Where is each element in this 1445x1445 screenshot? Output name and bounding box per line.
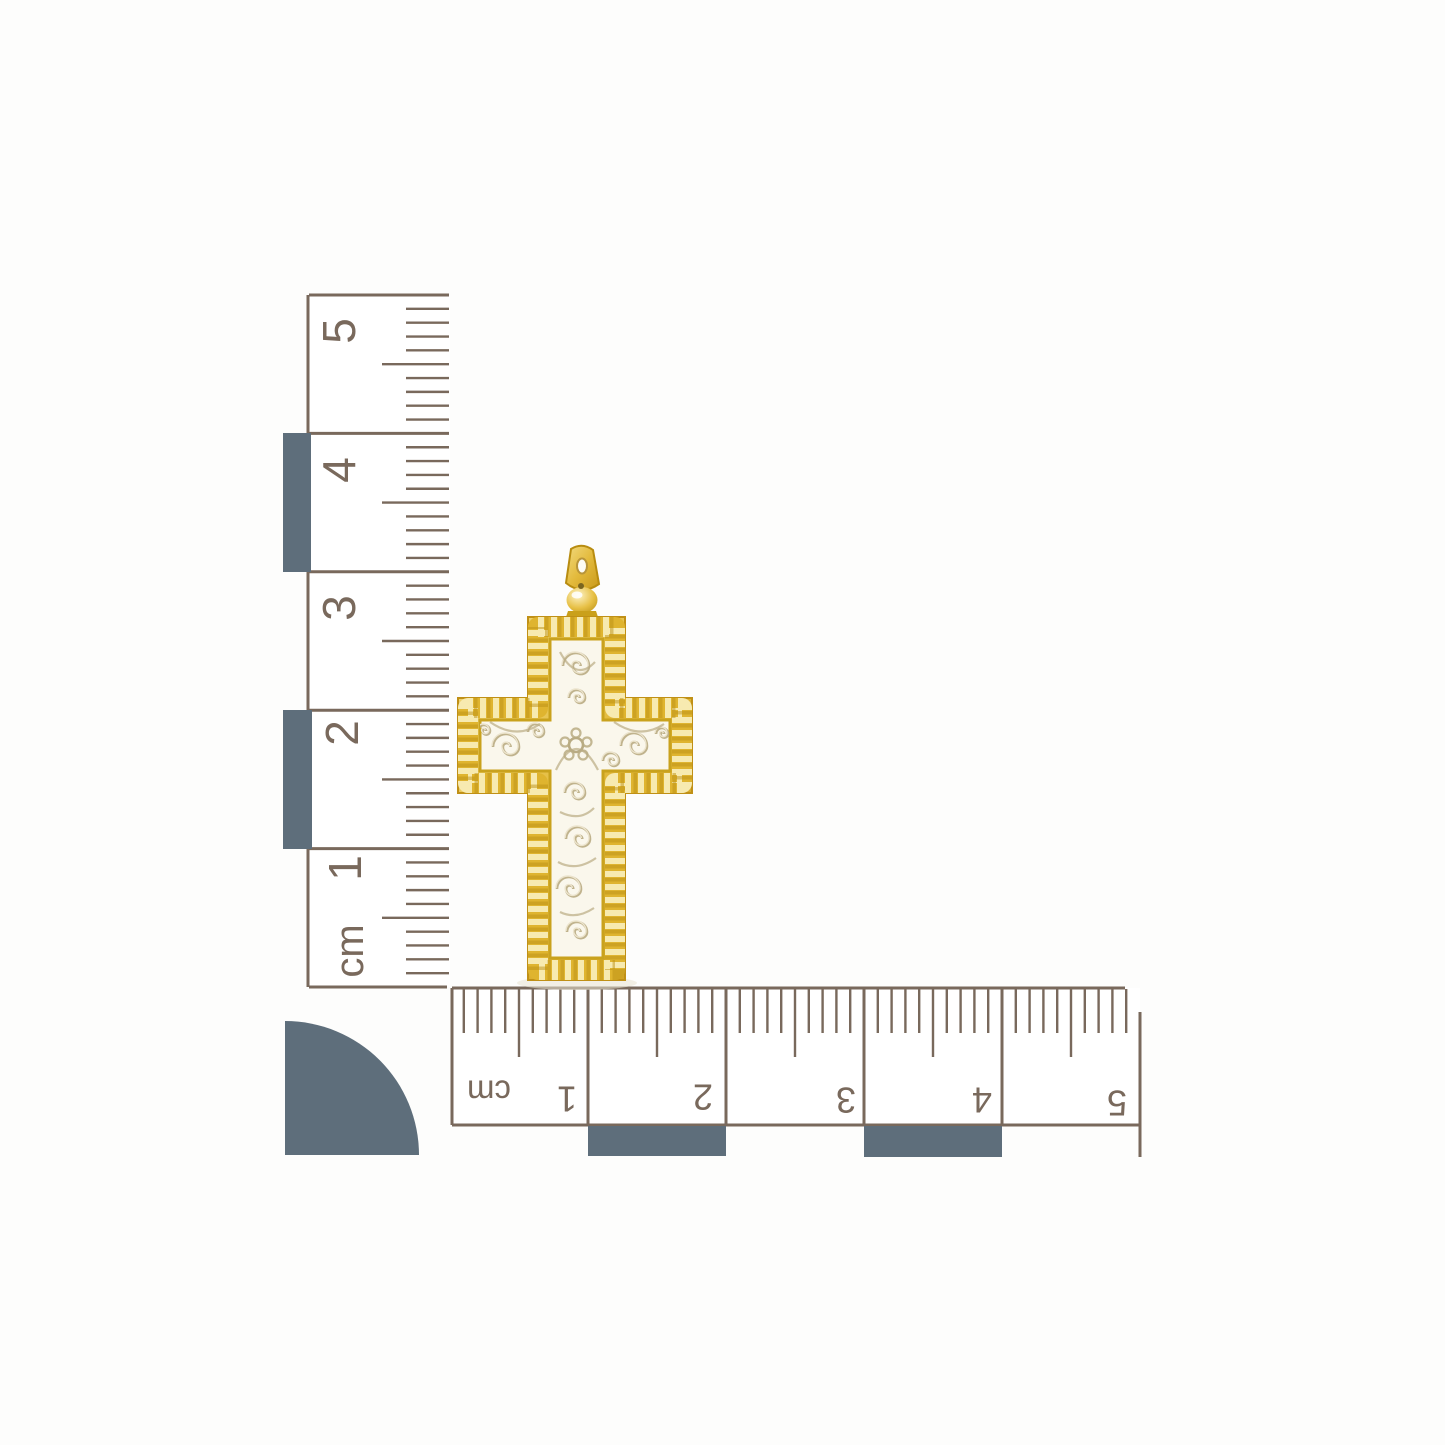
vertical-ruler-unit-label: cm <box>328 924 372 977</box>
photo-stage: 5 4 3 2 1 cm cm 1 2 3 4 5 <box>0 0 1445 1445</box>
vertical-ruler-label-2: 2 <box>316 720 368 746</box>
vertical-ruler-shade-block-2-1 <box>283 710 312 849</box>
vertical-ruler-label-5: 5 <box>313 318 365 344</box>
vertical-ruler-label-1: 1 <box>319 855 371 881</box>
bail-ball <box>567 587 598 613</box>
pendant-bail <box>565 546 599 620</box>
vertical-ruler-label-3: 3 <box>313 595 365 621</box>
scene-svg: 5 4 3 2 1 cm cm 1 2 3 4 5 <box>0 0 1445 1445</box>
horizontal-ruler: cm 1 2 3 4 5 <box>452 988 1140 1157</box>
horizontal-ruler-shade-block-1-2 <box>588 1126 726 1156</box>
bail-ball-dark-dot <box>578 583 584 589</box>
horizontal-ruler-unit-label: cm <box>467 1074 511 1111</box>
horizontal-ruler-label-3: 3 <box>836 1080 856 1121</box>
cross-pendant-photo <box>458 546 692 990</box>
vertical-ruler-label-4: 4 <box>313 457 365 483</box>
horizontal-ruler-shade-block-3-4 <box>864 1126 1002 1157</box>
vertical-ruler-shade-block-4-3 <box>283 433 311 572</box>
horizontal-ruler-label-4: 4 <box>972 1080 992 1121</box>
corner-quarter-circle <box>285 1021 419 1155</box>
bail-hole <box>577 559 587 574</box>
vertical-ruler: 5 4 3 2 1 cm <box>283 295 450 987</box>
horizontal-ruler-label-1: 1 <box>557 1079 577 1120</box>
horizontal-ruler-label-5: 5 <box>1107 1083 1127 1124</box>
horizontal-ruler-label-2: 2 <box>693 1077 713 1118</box>
bail-ball-highlight <box>572 592 583 599</box>
